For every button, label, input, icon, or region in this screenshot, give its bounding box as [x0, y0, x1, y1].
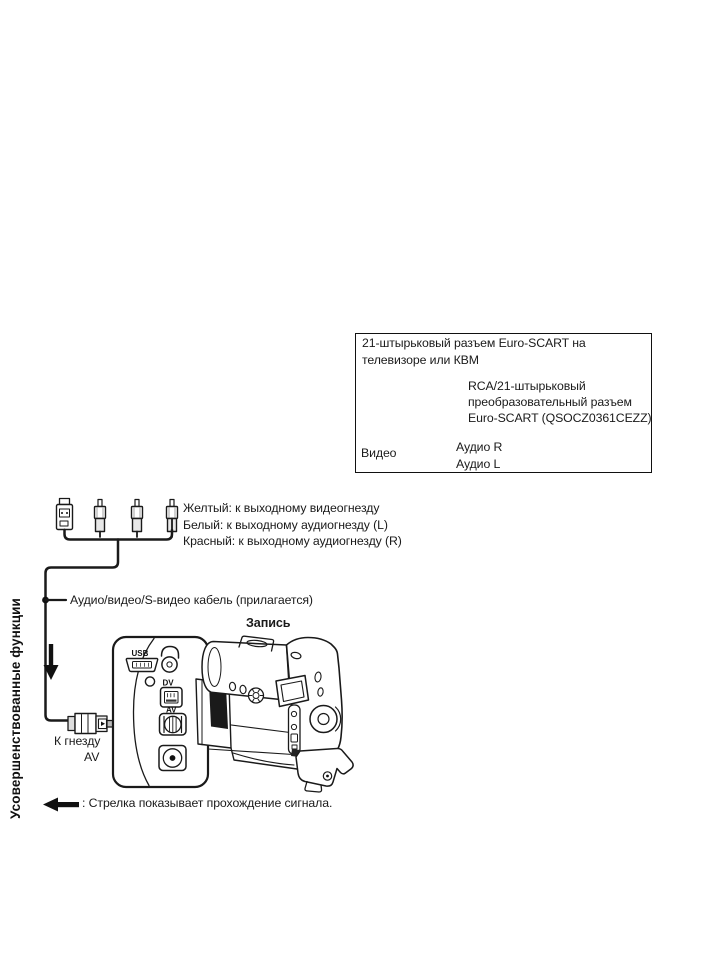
s-video-plug [57, 499, 73, 530]
av-plug [68, 714, 119, 734]
record-mode-label: Запись [246, 616, 290, 630]
adapter-name-line3: Euro-SCART (QSOCZ0361CEZZ) [468, 411, 652, 425]
cable-yellow-label: Желтый: к выходному видеогнезду [183, 501, 379, 515]
video-label: Видео [361, 446, 396, 460]
diagram-artwork: USB DV AV [0, 0, 716, 980]
cable-name-label: Аудио/видео/S-видео кабель (прилагается) [70, 593, 313, 607]
signal-note: : Стрелка показывает прохождение сигнала… [82, 796, 332, 810]
dc-jack [159, 746, 186, 771]
audio-l-label: Аудио L [456, 457, 500, 471]
to-av-jack-label-line2: AV [84, 750, 99, 764]
usb-port [126, 659, 157, 672]
adapter-name-line1: RCA/21-штырьковый [468, 379, 586, 393]
signal-legend-arrow-icon [43, 798, 79, 812]
dv-port-label: DV [163, 679, 175, 688]
to-av-jack-label-line1: К гнезду [54, 734, 100, 748]
rca-plug-yellow [95, 500, 106, 532]
sidebar-section-label: Усовершенствованные функции [8, 598, 23, 819]
audio-r-label: Аудио R [456, 440, 502, 454]
rca-plug-white [132, 500, 143, 532]
scart-box-title-line1: 21-штырьковый разъем Euro-SCART на [362, 336, 586, 350]
av-port-label: AV [166, 706, 177, 715]
dv-port [161, 688, 183, 708]
usb-port-label: USB [132, 649, 149, 658]
av-port [160, 714, 187, 736]
cable-white-label: Белый: к выходному аудиогнезду (L) [183, 518, 388, 532]
cable-red-label: Красный: к выходному аудиогнезду (R) [183, 534, 402, 548]
manual-page: USB DV AV Усовершенствованные функции 21… [0, 0, 716, 980]
scart-box-title-line2: телевизоре или КВМ [362, 353, 479, 367]
adapter-name-line2: преобразовательный разъем [468, 395, 632, 409]
camcorder-illustration [196, 636, 353, 792]
